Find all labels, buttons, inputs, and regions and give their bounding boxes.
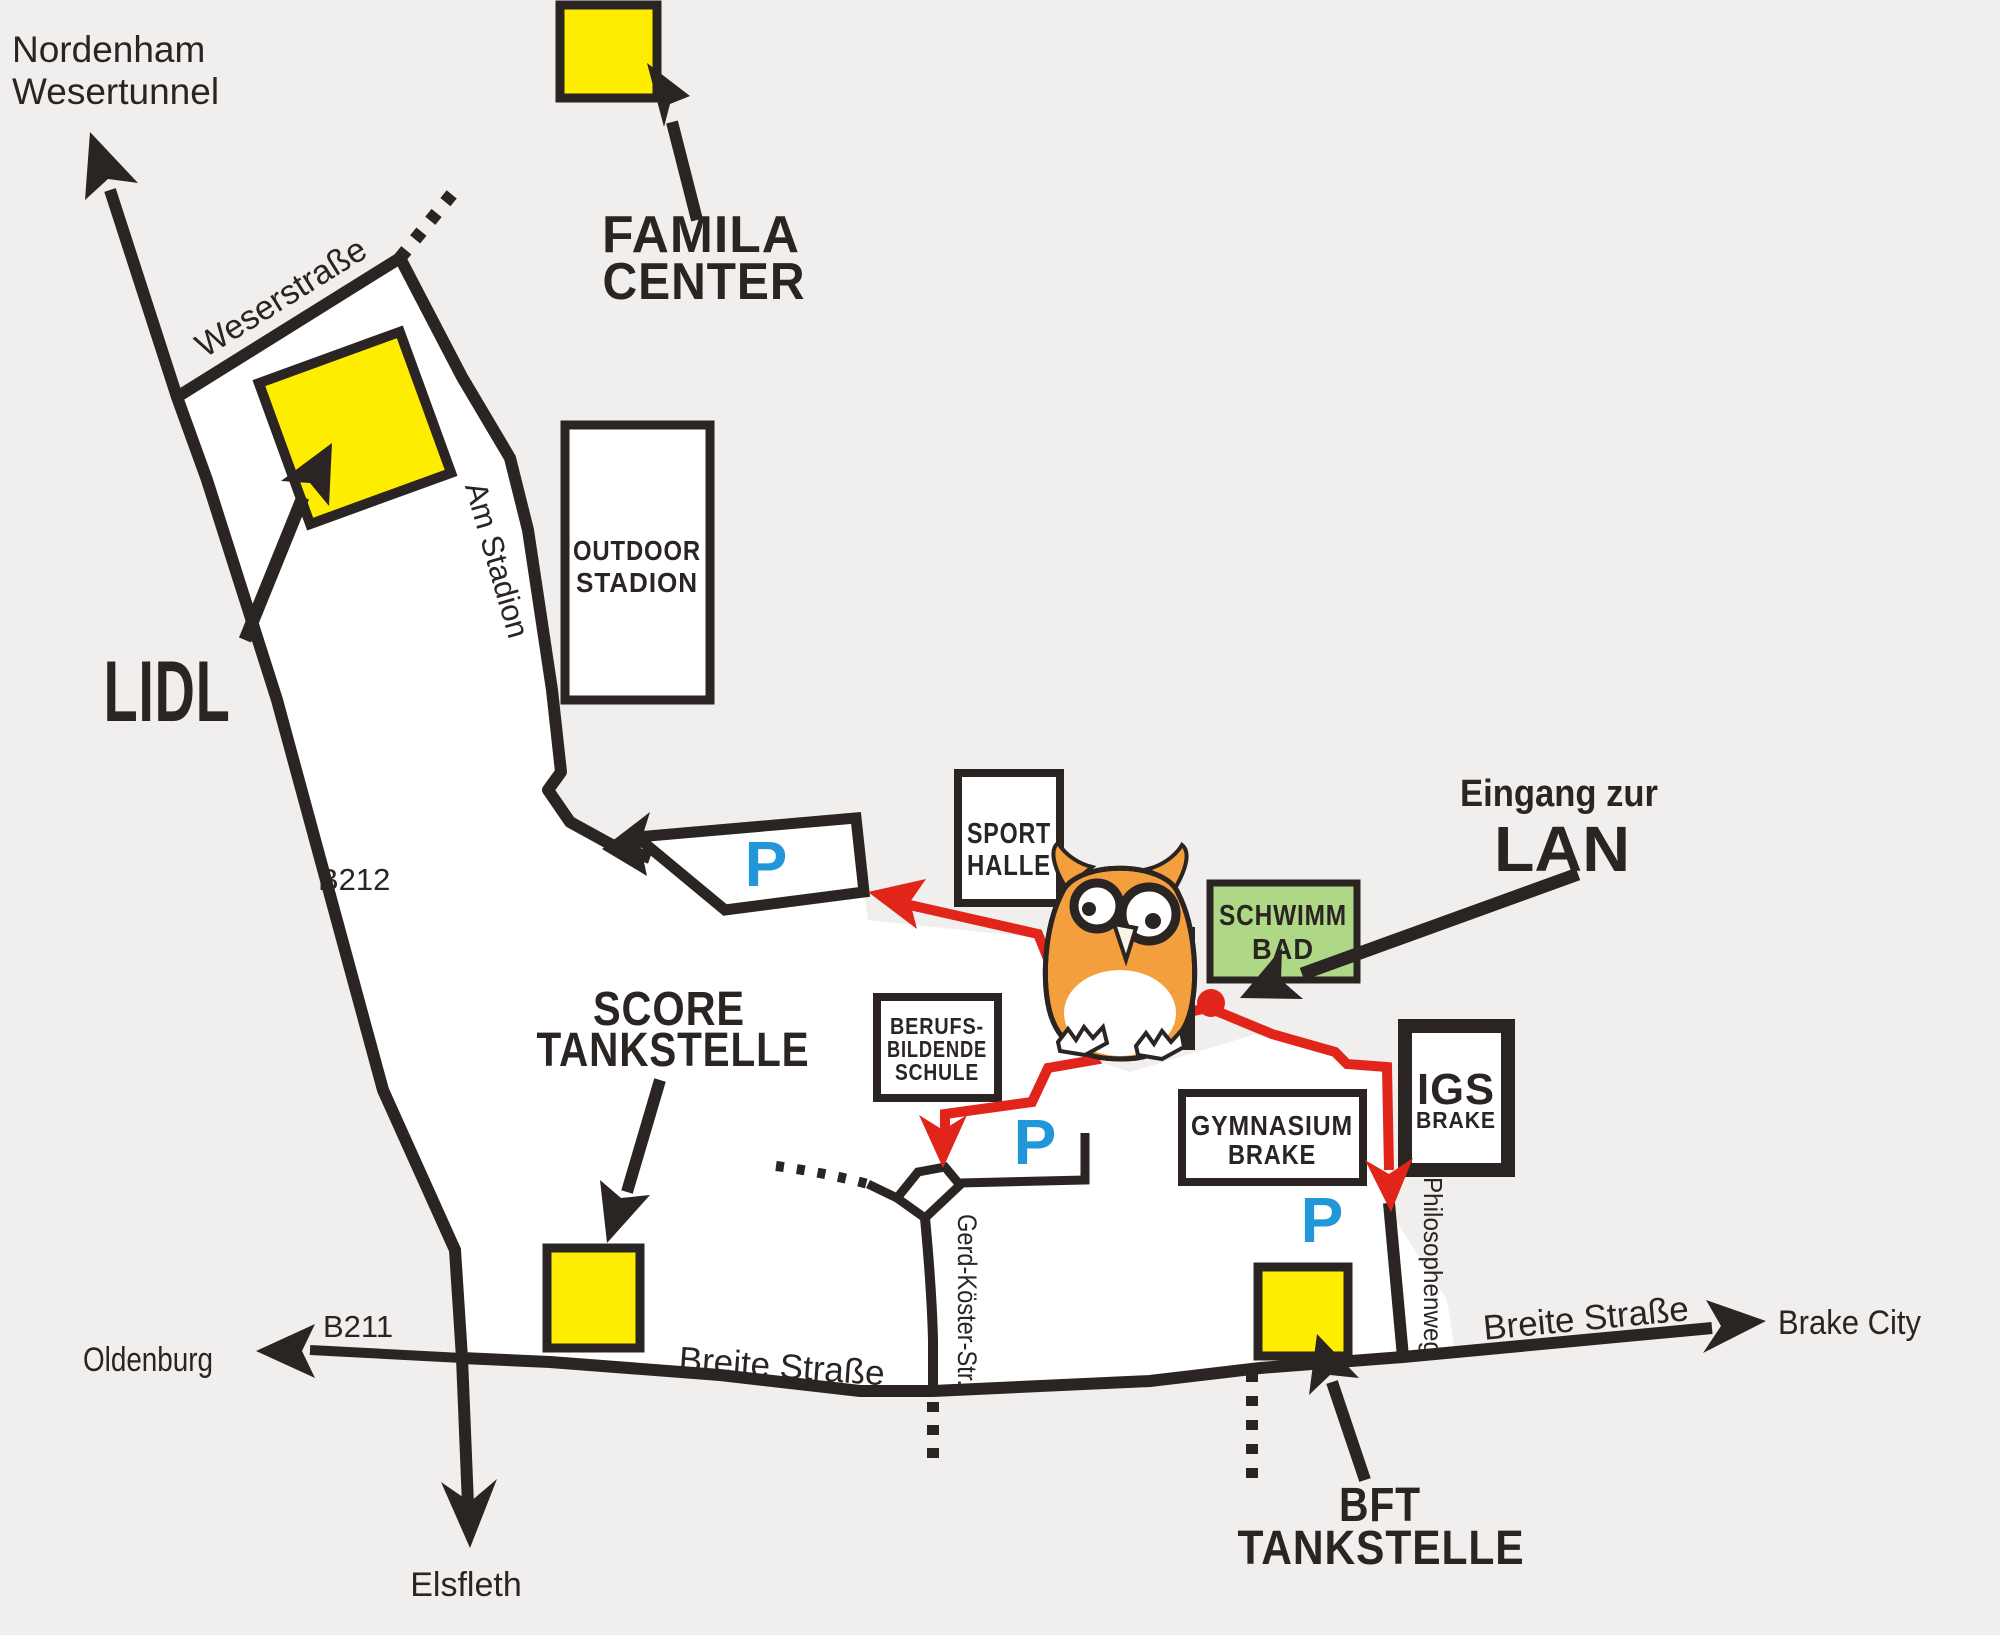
- parking-p-sporthalle: P: [745, 828, 788, 900]
- label-gymnasium-line1: GYMNASIUM: [1191, 1110, 1353, 1141]
- label-nordenham-line2: Wesertunnel: [12, 71, 219, 112]
- label-b211: B211: [323, 1309, 393, 1344]
- famila-square: [560, 5, 657, 98]
- label-oldenburg: Oldenburg: [83, 1341, 213, 1379]
- owl-mascot: [1045, 843, 1194, 1059]
- label-brake-city: Brake City: [1778, 1304, 1921, 1342]
- label-gerd-koester-str: Gerd-Köster-Str.: [952, 1214, 982, 1386]
- owl-pupil-right: [1145, 913, 1161, 929]
- label-famila-line2: CENTER: [603, 253, 806, 311]
- label-score-line2: TANKSTELLE: [537, 1024, 810, 1077]
- label-gymnasium-line2: BRAKE: [1228, 1139, 1316, 1170]
- label-igs-line2: BRAKE: [1416, 1107, 1496, 1133]
- label-lidl: LIDL: [104, 644, 231, 740]
- label-outdoor-line2: STADION: [576, 567, 698, 598]
- parking-p-berufsschule: P: [1014, 1106, 1057, 1178]
- label-sporthalle-line1: SPORT: [967, 818, 1051, 850]
- label-sporthalle-line2: HALLE: [967, 850, 1051, 882]
- map-page: Nordenham Wesertunnel Weserstraße Am Sta…: [0, 0, 2000, 1635]
- label-philosophenweg: Philosophenweg: [1418, 1177, 1448, 1355]
- label-outdoor-line1: OUTDOOR: [573, 535, 701, 566]
- label-entrance-line2: LAN: [1494, 813, 1630, 885]
- map-canvas: Nordenham Wesertunnel Weserstraße Am Sta…: [0, 0, 2000, 1635]
- bft-square: [1258, 1267, 1348, 1356]
- owl-pupil-left: [1082, 902, 1096, 916]
- label-schwimmbad-line2: BAD: [1252, 934, 1314, 966]
- label-berufsschule-line3: SCHULE: [895, 1059, 979, 1085]
- label-schwimmbad-line1: SCHWIMM: [1219, 900, 1347, 932]
- label-entrance-line1: Eingang zur: [1460, 773, 1658, 815]
- label-b212: B212: [318, 862, 390, 897]
- label-elsfleth: Elsfleth: [410, 1566, 522, 1604]
- score-square: [547, 1248, 640, 1348]
- label-nordenham-line1: Nordenham: [12, 29, 205, 70]
- lan-entrance-dot: [1197, 989, 1225, 1017]
- parking-p-gymnasium: P: [1301, 1184, 1344, 1256]
- label-bft-line2: TANKSTELLE: [1238, 1522, 1525, 1575]
